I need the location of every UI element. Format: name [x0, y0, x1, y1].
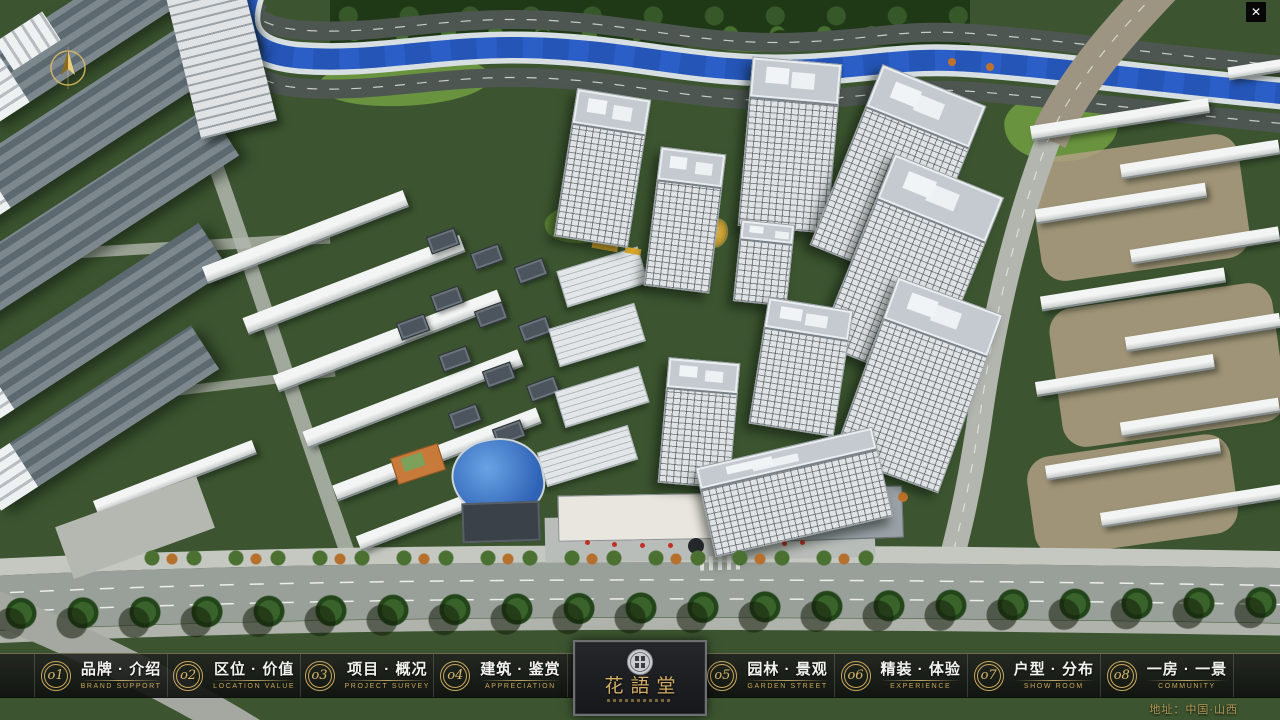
nav-left-cap: [0, 654, 34, 697]
nav-label-zh: 园林 · 景观: [747, 662, 827, 677]
nav-divider-rule: [747, 680, 827, 681]
nav-label-en: GARDEN STREET: [747, 683, 827, 690]
sales-presentation-screen: ✕ o1 品牌 · 介绍 BRAND SUPPORT o2 区位 · 价值 LO…: [0, 0, 1280, 720]
nav-label-en: PROJECT SURVEY: [345, 683, 431, 690]
compass: [44, 44, 92, 97]
nav-number-badge: o7: [974, 661, 1004, 691]
nav-label-en: COMMUNITY: [1158, 683, 1216, 690]
nav-number-badge: o3: [305, 661, 335, 691]
nav-divider-rule: [81, 680, 162, 681]
north-arrow-icon: [44, 44, 92, 92]
nav-label-zh: 区位 · 价值: [214, 662, 294, 677]
nav-number-badge: o2: [173, 661, 203, 691]
nav-item-brand-intro[interactable]: o1 品牌 · 介绍 BRAND SUPPORT: [34, 654, 167, 697]
nav-number-badge: o8: [1107, 661, 1137, 691]
nav-number-badge: o6: [841, 661, 871, 691]
nav-label-en: BRAND SUPPORT: [81, 683, 162, 690]
roadside-trees-north: [140, 548, 900, 568]
brand-seal-icon: [626, 648, 654, 676]
courtyard-gate-roof: [461, 501, 540, 544]
autumn-tree: [898, 492, 908, 502]
nav-divider-rule: [1014, 680, 1094, 681]
masterplan-render: [0, 0, 1280, 720]
autumn-tree: [948, 58, 956, 66]
nav-label-en: LOCATION VALUE: [213, 683, 295, 690]
nav-item-floorplan-distribution[interactable]: o7 户型 · 分布 SHOW ROOM: [967, 654, 1100, 697]
nav-label-en: EXPERIENCE: [890, 683, 951, 690]
project-address: 地址：中国·山西: [1149, 701, 1238, 717]
brand-subtitle-microtext: [607, 699, 673, 702]
nav-item-project-survey[interactable]: o3 项目 · 概况 PROJECT SURVEY: [300, 654, 433, 697]
nav-number-badge: o1: [41, 661, 71, 691]
nav-divider-rule: [345, 680, 431, 681]
nav-item-location-value[interactable]: o2 区位 · 价值 LOCATION VALUE: [167, 654, 300, 697]
nav-right-cap: [1233, 654, 1280, 697]
nav-item-room-view[interactable]: o8 一房 · 一景 COMMUNITY: [1100, 654, 1233, 697]
nav-number-badge: o5: [707, 661, 737, 691]
nav-divider-rule: [213, 680, 295, 681]
nav-divider-rule: [480, 680, 560, 681]
nav-label-zh: 建筑 · 鉴赏: [480, 662, 560, 677]
brand-logo-box[interactable]: 花語堂: [573, 640, 707, 716]
close-button[interactable]: ✕: [1246, 2, 1266, 22]
nav-label-zh: 精装 · 体验: [881, 662, 961, 677]
red-car: [612, 542, 617, 547]
red-car: [585, 540, 590, 545]
nav-label-zh: 一房 · 一景: [1147, 662, 1227, 677]
tower: [733, 219, 795, 306]
brand-name: 花語堂: [597, 676, 682, 698]
nav-divider-rule: [881, 680, 961, 681]
nav-item-interior-experience[interactable]: o6 精装 · 体验 EXPERIENCE: [834, 654, 967, 697]
autumn-tree: [986, 63, 994, 71]
nav-divider-rule: [1147, 680, 1227, 681]
nav-label-zh: 户型 · 分布: [1014, 662, 1094, 677]
nav-number-badge: o4: [440, 661, 470, 691]
nav-label-en: APPRECIATION: [485, 683, 556, 690]
nav-label-zh: 品牌 · 介绍: [81, 662, 161, 677]
nav-item-architecture[interactable]: o4 建筑 · 鉴赏 APPRECIATION: [433, 654, 566, 697]
nav-item-garden-landscape[interactable]: o5 园林 · 景观 GARDEN STREET: [701, 654, 834, 697]
nav-label-en: SHOW ROOM: [1024, 683, 1084, 690]
red-car: [800, 540, 805, 545]
nav-label-zh: 项目 · 概况: [347, 662, 427, 677]
close-icon: ✕: [1251, 6, 1261, 18]
